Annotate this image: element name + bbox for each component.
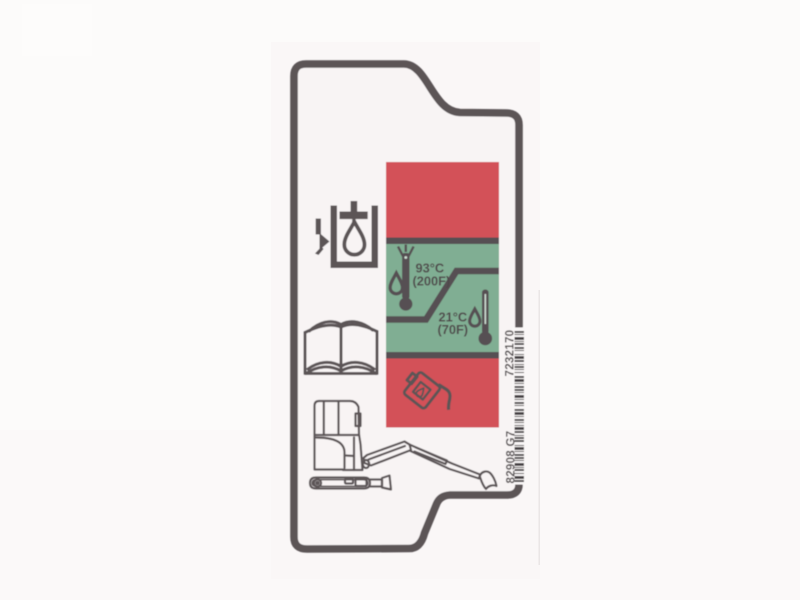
- svg-text:(200F): (200F): [413, 274, 451, 289]
- svg-text:(70F): (70F): [438, 322, 469, 337]
